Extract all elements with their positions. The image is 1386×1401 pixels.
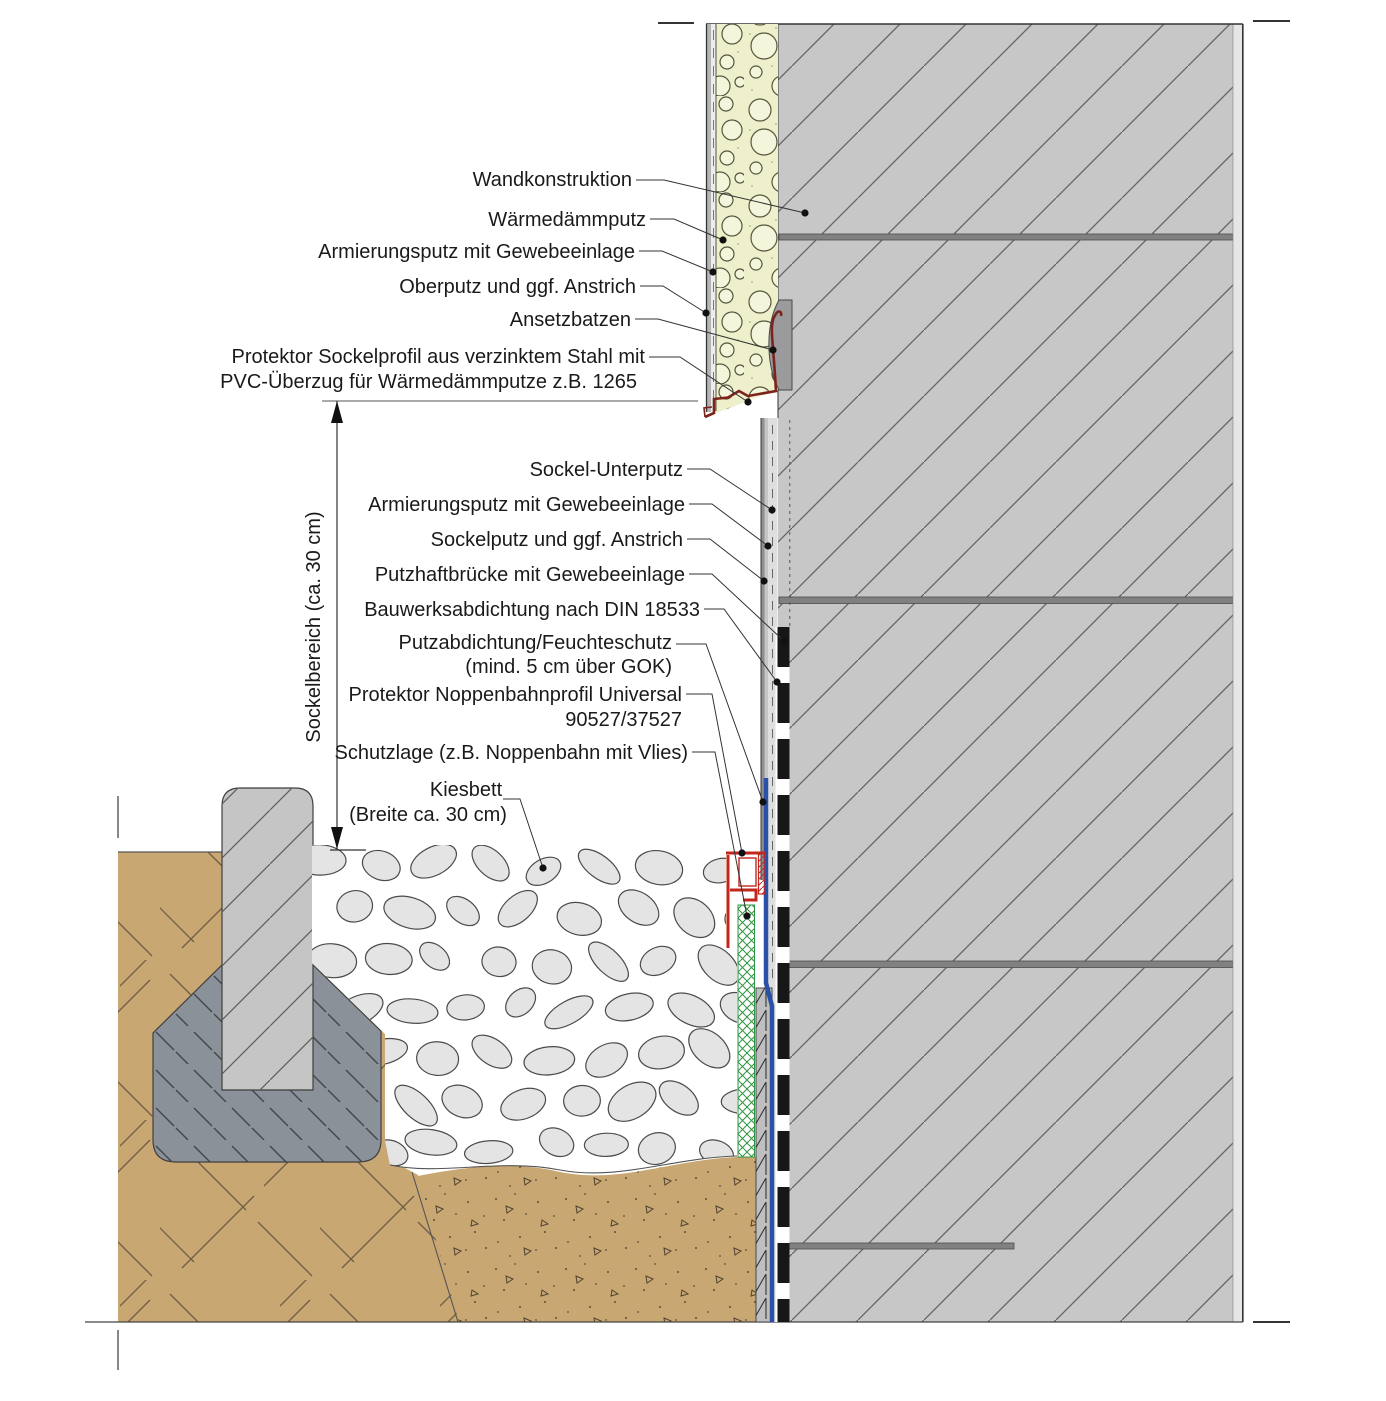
label-putzabdichtung-2: (mind. 5 cm über GOK) <box>465 656 672 678</box>
label-sockel-unterputz: Sockel-Unterputz <box>530 459 683 481</box>
wall-hatch <box>778 24 1233 1322</box>
wall-inner-plaster-strip <box>1233 24 1243 1322</box>
label-bauwerksabdichtung: Bauwerksabdichtung nach DIN 18533 <box>364 599 700 621</box>
labels: Wandkonstruktion Wärmedämmputz Armierung… <box>220 169 700 826</box>
label-sockelprofil-2: PVC-Überzug für Wärmedämmputze z.B. 1265 <box>220 371 637 393</box>
construction-detail-page: Sockelbereich (ca. 30 cm) Wandkonstrukti… <box>0 0 1386 1401</box>
label-schutzlage: Schutzlage (z.B. Noppenbahn mit Vlies) <box>334 742 688 764</box>
detail-drawing-svg: Sockelbereich (ca. 30 cm) Wandkonstrukti… <box>0 0 1386 1401</box>
label-armierungsputz-oben: Armierungsputz mit Gewebeeinlage <box>318 241 635 263</box>
label-noppenbahnprofil-2: 90527/37527 <box>565 709 682 731</box>
label-ansetzbatzen: Ansetzbatzen <box>510 309 631 331</box>
label-putzabdichtung-1: Putzabdichtung/Feuchteschutz <box>398 632 672 654</box>
reinforcing-render-layer-top <box>707 24 711 412</box>
dimension-arrow-up <box>331 401 343 423</box>
label-armierungsputz-unten: Armierungsputz mit Gewebeeinlage <box>368 494 685 516</box>
label-putzhaftbruecke: Putzhaftbrücke mit Gewebeeinlage <box>375 564 685 586</box>
waterproofing-bars <box>778 627 790 1322</box>
label-sockelprofil-1: Protektor Sockelprofil aus verzinktem St… <box>232 346 646 368</box>
dimension-label: Sockelbereich (ca. 30 cm) <box>303 511 325 742</box>
label-kiesbett-1: Kiesbett <box>430 779 503 801</box>
label-noppenbahnprofil-1: Protektor Noppenbahnprofil Universal <box>348 684 682 706</box>
label-oberputz: Oberputz und ggf. Anstrich <box>399 276 636 298</box>
label-wandkonstruktion: Wandkonstruktion <box>473 169 632 191</box>
label-waermedaemmputz: Wärmedämmputz <box>488 209 646 231</box>
label-kiesbett-2: (Breite ca. 30 cm) <box>349 804 507 826</box>
label-sockelputz: Sockelputz und ggf. Anstrich <box>431 529 683 551</box>
